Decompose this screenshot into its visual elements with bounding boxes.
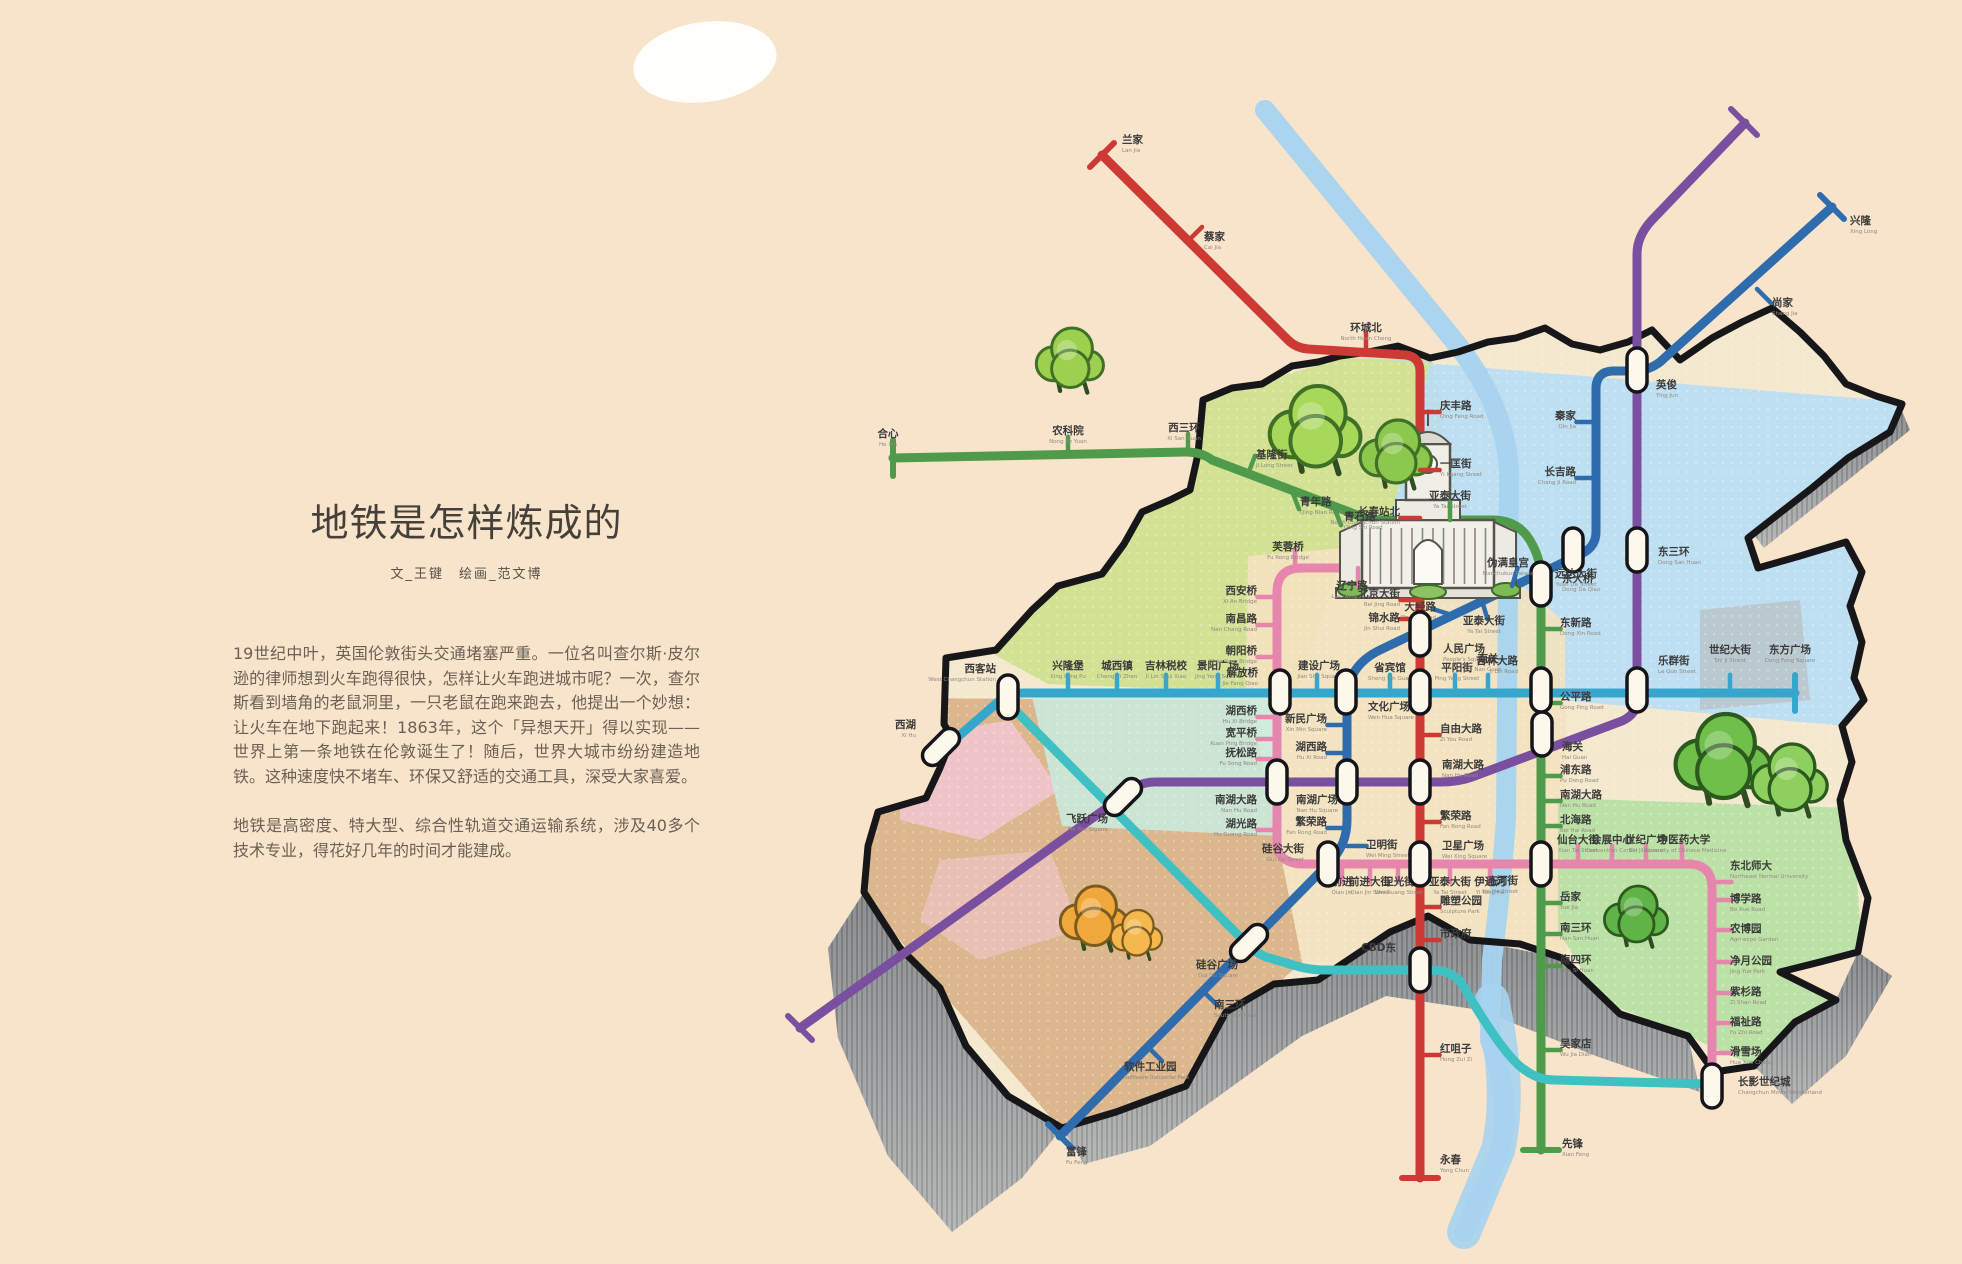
station-xing-long: 兴隆Xing Long <box>1850 214 1877 235</box>
station-pinyin: Ying Jun <box>1655 393 1679 399</box>
station-wu-jia-dian: 吴家店Wu Jia Dian <box>1541 1037 1592 1058</box>
station-name: 南昌路 <box>1226 612 1258 625</box>
station-name: 基隆街 <box>1255 448 1288 461</box>
station-name: 东北师大 <box>1730 859 1772 872</box>
station-pinyin: Wei Xing Square <box>1442 854 1488 860</box>
station-name: 西湖 <box>895 718 916 731</box>
station-pinyin: Jing Yue Park <box>1729 969 1766 975</box>
station-pinyin: He Xin <box>879 442 898 448</box>
station-name: 吴家店 <box>1560 1037 1592 1050</box>
station-pinyin: Qing Feng Road <box>1440 414 1483 420</box>
station-name: 东新路 <box>1560 616 1592 629</box>
interchange-capsule <box>1410 670 1430 714</box>
station-name: 净月公园 <box>1730 954 1772 967</box>
interchange-capsule <box>1702 1064 1722 1108</box>
station-name: 南湖广场 <box>1296 793 1338 806</box>
station-name: 宽平桥 <box>1225 726 1258 739</box>
station-pinyin: Wei Ming Street <box>1366 853 1410 859</box>
interchange-capsule <box>1627 668 1647 712</box>
station-name: 乐群街 <box>1658 654 1690 667</box>
station-name: 南四环 <box>1560 953 1592 966</box>
station-name: 一匡街 <box>1440 457 1472 470</box>
station-name: 合心 <box>877 427 899 440</box>
station-name: 北海路 <box>1560 813 1592 826</box>
station-name: 朝阳桥 <box>1226 644 1258 657</box>
station-pinyin: Yue Jia <box>1559 905 1578 911</box>
station-pinyin: Sculpture Park <box>1440 909 1481 915</box>
station-pinyin: CBD East <box>1371 956 1397 962</box>
station-name: 红咀子 <box>1440 1042 1472 1055</box>
station-name: 飞跃广场 <box>1066 812 1108 825</box>
station-pinyin: Agri-expo Garden <box>1730 937 1779 943</box>
station-pinyin: Shi Ji Street <box>1714 658 1747 664</box>
station-pinyin: Nan Hu Road <box>1442 773 1478 779</box>
station-name: 抚松路 <box>1226 746 1258 759</box>
station-name: 湖西桥 <box>1226 704 1258 717</box>
station-pinyin: Wen Hua Square <box>1368 715 1414 721</box>
station-name: 硅谷大街 <box>1262 842 1304 855</box>
station-name: 公平路 <box>1560 690 1592 703</box>
station-name: 省宾馆 <box>1373 661 1406 674</box>
station-pinyin: Xi An Bridge <box>1223 599 1258 605</box>
station-name: 兴隆 <box>1850 214 1872 227</box>
station-pinyin: Dong San Huan <box>1658 560 1701 566</box>
station-pinyin: Hai Guan <box>1562 755 1588 761</box>
station-pinyin: Xin Min Square <box>1286 727 1328 733</box>
station-name: 西三环 <box>1168 422 1200 434</box>
metro-map-illustration: 合心He Xin农科院Nong Ke Yuan西三环Xi San Huan基隆街… <box>0 0 1962 1264</box>
station-yong-chun: 永春Yong Chun <box>1439 1153 1470 1174</box>
station-pinyin: Xing Long <box>1850 229 1877 235</box>
station-pinyin: Xing Long Pu <box>1050 674 1086 680</box>
station-name: 兰家 <box>1122 133 1144 146</box>
station-name: 繁荣路 <box>1439 809 1472 822</box>
station-pinyin: Wu Jia Dian <box>1560 1052 1592 1058</box>
station-pinyin: Yuan Da Street <box>1555 582 1598 588</box>
station-pinyin: Ji Lin Shui Xiao <box>1145 674 1187 680</box>
station-pinyin: Pu Dong Road <box>1560 778 1599 784</box>
station-name: 世纪大街 <box>1709 643 1751 656</box>
interchange-capsule <box>998 675 1018 719</box>
station-pinyin: West Changchun Station <box>928 677 996 683</box>
station-pinyin: Yong Chun <box>1439 1168 1470 1174</box>
station-name: 尚家 <box>1772 296 1794 309</box>
station-name: 锦水路 <box>1369 611 1401 624</box>
station-pinyin: City Hall <box>1440 942 1464 948</box>
scan-artifact <box>628 12 782 111</box>
station-name: 蔡家 <box>1203 230 1226 243</box>
station-pinyin: Zi You Road <box>1440 737 1472 743</box>
station-pinyin: Shang Jia <box>1772 311 1798 317</box>
station-dong-fang-square: 东方广场Dong Fang Square <box>1765 643 1816 664</box>
station-name: 自由大路 <box>1440 722 1482 735</box>
station-name: 文化广场 <box>1367 700 1410 713</box>
station-pinyin: Gui Gu Square <box>1198 973 1238 979</box>
station-pinyin: Nan Hu Square <box>1297 808 1339 814</box>
station-pinyin: Cheng Xi Zhen <box>1097 674 1138 680</box>
station-name: 农科院 <box>1051 424 1084 437</box>
station-name: 海关 <box>1562 740 1584 753</box>
station-name: 吉林税校 <box>1145 659 1187 672</box>
station-pinyin: Bo Xue Road <box>1730 907 1765 913</box>
station-pinyin: Le Qun Street <box>1658 669 1697 675</box>
station-pinyin: Ya Tai Street <box>1466 629 1501 635</box>
station-pinyin: Fan Rong Road <box>1286 830 1327 836</box>
station-pinyin: Nan Hu Road <box>1221 808 1257 814</box>
interchange-capsule <box>1410 612 1430 656</box>
station-pinyin: Software Industrial Park <box>1124 1075 1190 1081</box>
station-pinyin: Bei Jing Road <box>1364 602 1400 608</box>
station-name: 滑雪场 <box>1730 1045 1762 1058</box>
station-pinyin: Manchukuo Palace <box>1483 571 1535 577</box>
station-people-s-square <box>1410 612 1430 656</box>
station-pinyin: Sheng Bin Guan <box>1368 676 1413 682</box>
station-name: 青年路 <box>1300 495 1332 508</box>
station-pinyin: Fu Zhi Road <box>1730 1030 1762 1036</box>
station-pinyin: Yi Kuang Street <box>1439 472 1483 478</box>
station-pinyin: Hu Xi Bridge <box>1223 719 1258 725</box>
station-name: 东方广场 <box>1769 643 1811 656</box>
station-pinyin: Jin Shui Road <box>1363 626 1400 632</box>
station-name: 秦家 <box>1554 409 1577 422</box>
station-pinyin: Fan Rong Road <box>1440 824 1481 830</box>
station-name: 庆丰路 <box>1439 399 1472 412</box>
station-name: 伪满皇宫 <box>1486 556 1529 569</box>
station-name: 长春站北 <box>1358 505 1400 518</box>
station-name: 南三环 <box>1560 921 1592 934</box>
station-name: 西安桥 <box>1226 584 1258 597</box>
station-pinyin: Ya Tai Street <box>1432 504 1467 510</box>
interchange-capsule <box>1532 712 1552 756</box>
station-pinyin: Fu Feng <box>1066 1160 1087 1166</box>
station-name: 芙蓉桥 <box>1271 540 1304 553</box>
station-lan-jia: 兰家Lan Jia <box>1122 133 1144 154</box>
interchange-capsule <box>1627 348 1647 392</box>
station-hong-zui-zi: 红咀子Hong Zui Zi <box>1420 1042 1473 1063</box>
station-pinyin: Hua Xue Chang <box>1730 1060 1773 1066</box>
station-pinyin: Xi San Huan <box>1167 436 1201 442</box>
station-name: 农博园 <box>1729 922 1762 935</box>
station-pinyin: Hu Xi Road <box>1297 755 1327 761</box>
station-name: 吉林大路 <box>1476 654 1518 667</box>
station-name: 西客站 <box>965 662 997 675</box>
station-pinyin: Xian Feng <box>1562 1152 1589 1158</box>
station-name: 湖西路 <box>1296 740 1328 753</box>
station-pinyin: North Huan Cheng <box>1340 336 1391 342</box>
station-pinyin: Ji Long Street <box>1255 463 1294 469</box>
station-name: 北京大街 <box>1358 587 1400 600</box>
interchange-capsule <box>1531 842 1551 886</box>
station-pinyin: Hong Zui Zi <box>1440 1057 1473 1063</box>
station-pinyin: Wei Guang Street <box>1375 890 1424 896</box>
station-name: 环城北 <box>1350 321 1382 334</box>
station-pinyin: Nong Ke Yuan <box>1049 439 1087 445</box>
station-name: 长吉路 <box>1545 465 1577 478</box>
station-name: 永春 <box>1439 1153 1462 1166</box>
station-pinyin: Cai Jia <box>1204 245 1221 251</box>
station-pinyin: North Changchun Station <box>1330 520 1400 526</box>
station-name: CBD东 <box>1361 941 1396 954</box>
interchange-capsule <box>1410 760 1430 804</box>
interchange-capsule <box>1531 562 1551 606</box>
station-he-xin: 合心He Xin <box>877 427 899 448</box>
station-name: 城西镇 <box>1101 659 1133 672</box>
station-name: 紫杉路 <box>1730 985 1762 998</box>
station-pinyin: Fu Rong Bridge <box>1267 555 1309 561</box>
station-name: 市政府 <box>1440 927 1472 940</box>
station-name: 先锋 <box>1562 1137 1584 1150</box>
station-name: 卫星广场 <box>1442 839 1484 852</box>
interchange-capsule <box>1337 760 1357 804</box>
station-pinyin: Jie Fang Qiao <box>1221 681 1258 687</box>
station-name: 雕塑公园 <box>1440 894 1482 907</box>
station-name: 福祉路 <box>1729 1015 1762 1028</box>
station-name: 南湖大路 <box>1215 793 1257 806</box>
station-pinyin: Gong Ping Road <box>1560 705 1604 711</box>
station-name: 中医药大学 <box>1658 833 1711 846</box>
interchange-capsule <box>1270 670 1290 714</box>
station-pinyin: Chang Ji Road <box>1538 480 1576 486</box>
station-name: 亚泰大街 <box>1429 875 1471 888</box>
station-pinyin: Dong Xin Road <box>1560 631 1601 637</box>
interchange-capsule <box>1267 760 1287 804</box>
station-pinyin: Changchun Movie Wonderland <box>1738 1090 1822 1096</box>
interchange-capsule <box>1410 842 1430 886</box>
station-xian-feng: 先锋Xian Feng <box>1562 1137 1589 1158</box>
station-name: 东三环 <box>1658 545 1690 558</box>
interchange-capsule <box>1318 842 1338 886</box>
station-pinyin: Nan Chang Road <box>1211 627 1257 633</box>
station-name: 硅谷广场 <box>1196 958 1238 971</box>
station-pinyin: Nan Hu Road <box>1560 803 1596 809</box>
station-pinyin: Dong Fang Square <box>1765 658 1816 664</box>
station-pinyin: Fu Song Road <box>1220 761 1257 767</box>
station-name: 亚泰大街 <box>1463 614 1505 627</box>
station-fu-feng: 富锋Fu Feng <box>1066 1145 1088 1166</box>
station-name: 亚泰大街 <box>1429 489 1471 502</box>
station-name: 兴隆堡 <box>1052 659 1084 672</box>
station-pinyin: Qin Jia <box>1558 424 1576 430</box>
station-name: 远达大街 <box>1555 567 1597 580</box>
interchange-capsule <box>1410 948 1430 992</box>
station-name: 解放桥 <box>1226 666 1259 679</box>
station-name: 湖光路 <box>1226 817 1258 830</box>
station-name: 南湖大路 <box>1442 758 1484 771</box>
station-pinyin: South San Huan <box>1214 1013 1259 1019</box>
station-pinyin: Ping Yang Street <box>1435 676 1481 682</box>
station-pinyin: Chao Yang Bridge <box>1209 659 1258 665</box>
station-name: 平阳街 <box>1441 661 1473 674</box>
interchange-capsule <box>1563 528 1583 572</box>
station-name: 新民广场 <box>1285 712 1327 725</box>
station-pinyin: Nan San Huan <box>1560 936 1600 942</box>
station-pinyin: Fei Yue Square <box>1068 827 1109 833</box>
station-name: 博学路 <box>1730 892 1762 905</box>
station-pinyin: Zi Shan Road <box>1730 1000 1766 1006</box>
interchange-capsule <box>1627 528 1647 572</box>
station-name: 建设广场 <box>1297 659 1340 672</box>
interchange-capsule <box>1336 670 1356 714</box>
station-name: 岳家 <box>1560 890 1582 903</box>
station-name: 繁荣路 <box>1295 815 1328 828</box>
station-pinyin: University of Chinese Medicine <box>1642 848 1727 854</box>
station-name: 长影世纪城 <box>1738 1075 1791 1088</box>
station-name: 卫明街 <box>1366 838 1398 851</box>
station-name: 软件工业园 <box>1124 1060 1177 1073</box>
station-pinyin: Hu Guang Road <box>1214 832 1257 838</box>
station-name: 伊通河 <box>1473 875 1506 888</box>
station-name: 英俊 <box>1655 378 1678 391</box>
tree <box>1036 328 1103 393</box>
station-pinyin: Xi Hu <box>901 733 916 739</box>
station-pinyin: Gui Gu Street <box>1267 857 1305 863</box>
station-tick <box>1188 227 1202 241</box>
station-pinyin: Nan Si Huan <box>1560 968 1594 974</box>
station-tick <box>1757 289 1771 303</box>
interchange-capsule <box>1531 668 1551 712</box>
station-pinyin: Ji Lin Road <box>1488 669 1518 675</box>
station-pinyin: Northeast Normal University <box>1730 874 1809 880</box>
station-name: 富锋 <box>1066 1145 1088 1158</box>
station-pinyin: Lan Jia <box>1122 148 1140 154</box>
station-name: 南三环 <box>1214 998 1246 1011</box>
station-name: 浦东路 <box>1560 763 1592 776</box>
station-name: 南湖大路 <box>1560 788 1602 801</box>
